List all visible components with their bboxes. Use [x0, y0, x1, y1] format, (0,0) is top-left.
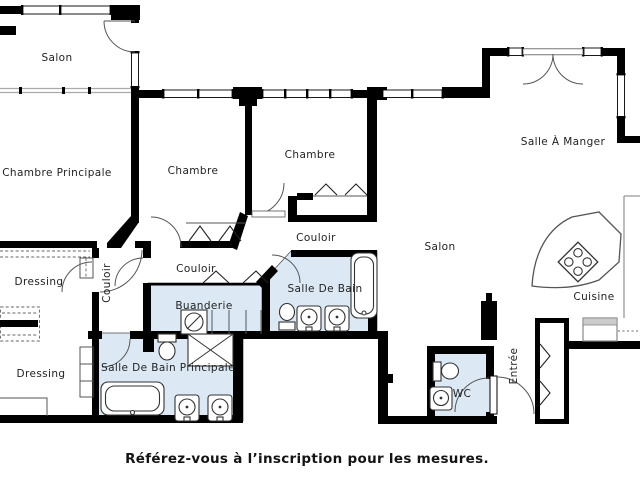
window-salon-top	[21, 5, 112, 15]
label-salle-a-manger: Salle À Manger	[521, 135, 606, 148]
appliance	[583, 318, 640, 341]
window-chambre-2a	[261, 89, 353, 99]
window-salle-a-manger-left	[507, 47, 524, 57]
windows	[21, 5, 626, 118]
shelf-unit	[80, 347, 93, 397]
window-salon-right	[131, 51, 140, 88]
wardrobe-rod	[0, 307, 40, 341]
label-couloir-upper: Couloir	[296, 232, 336, 244]
door-chambre-1	[151, 217, 181, 247]
label-cuisine: Cuisine	[573, 291, 614, 303]
glass-partition	[0, 87, 131, 94]
toilet-icon	[279, 304, 295, 331]
label-couloir-mid: Couloir	[176, 263, 216, 275]
toilet-icon	[433, 362, 459, 381]
label-chambre-principale: Chambre Principale	[2, 167, 112, 179]
bathtub-icon	[101, 382, 164, 415]
walls	[0, 5, 640, 424]
label-couloir-vertical: Couloir	[101, 263, 113, 303]
washing-machine-icon	[181, 310, 207, 334]
toilet-icon	[158, 334, 176, 360]
window-chambre-1	[162, 89, 234, 99]
label-salle-de-bain-principale: Salle De Bain Principale	[101, 362, 235, 374]
label-chambre-2: Chambre	[285, 149, 336, 161]
window-salle-a-manger-right	[582, 47, 603, 57]
sink-icon	[297, 306, 321, 331]
label-dressing-1: Dressing	[14, 276, 63, 288]
door-chambre-2	[252, 183, 285, 217]
counter-edge	[624, 196, 640, 318]
sink-icon	[175, 395, 199, 421]
column	[481, 301, 497, 340]
label-wc: WC	[453, 388, 472, 400]
door-salle-a-manger	[523, 49, 583, 84]
door-couloir	[115, 258, 143, 286]
label-salon-top: Salon	[41, 52, 72, 64]
plan-caption: Référez-vous à l’inscription pour les me…	[125, 451, 489, 467]
door-dressing	[62, 262, 92, 292]
floor-plan: Salon Chambre Principale Chambre Chambre…	[0, 0, 640, 480]
label-chambre-1: Chambre	[168, 165, 219, 177]
label-entree: Entrée	[508, 348, 520, 385]
label-salle-de-bain: Salle De Bain	[287, 283, 362, 295]
window-chambre-2b	[381, 89, 444, 99]
sink-icon	[208, 395, 232, 421]
door-salon-top	[104, 21, 135, 52]
sink-icon	[325, 306, 349, 331]
window-salle-a-manger-side	[617, 73, 626, 118]
sink-icon	[430, 387, 452, 410]
label-salon-main: Salon	[424, 241, 455, 253]
label-dressing-2: Dressing	[16, 368, 65, 380]
label-buanderie: Buanderie	[175, 300, 232, 312]
floor-plan-canvas: Salon Chambre Principale Chambre Chambre…	[0, 0, 640, 480]
